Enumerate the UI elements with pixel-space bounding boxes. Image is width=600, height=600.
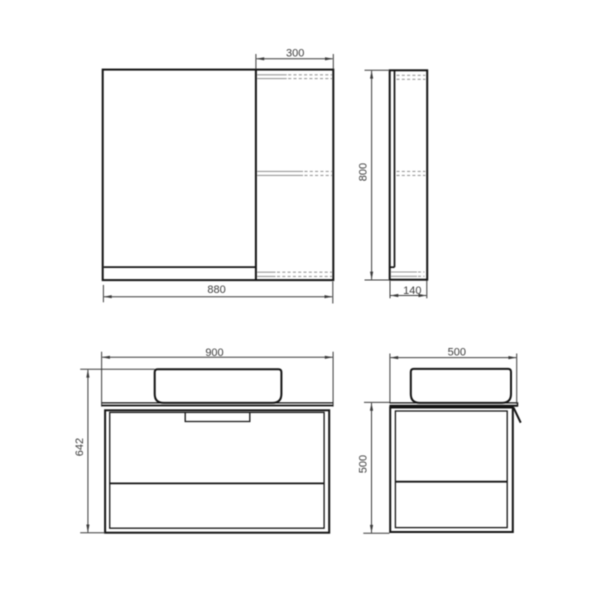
svg-text:300: 300 [286,47,304,59]
svg-text:140: 140 [403,285,421,297]
svg-text:900: 900 [205,347,223,359]
svg-text:500: 500 [448,346,466,358]
svg-text:880: 880 [207,284,225,296]
svg-text:642: 642 [74,438,86,456]
svg-text:800: 800 [357,163,369,181]
svg-text:500: 500 [358,455,370,473]
